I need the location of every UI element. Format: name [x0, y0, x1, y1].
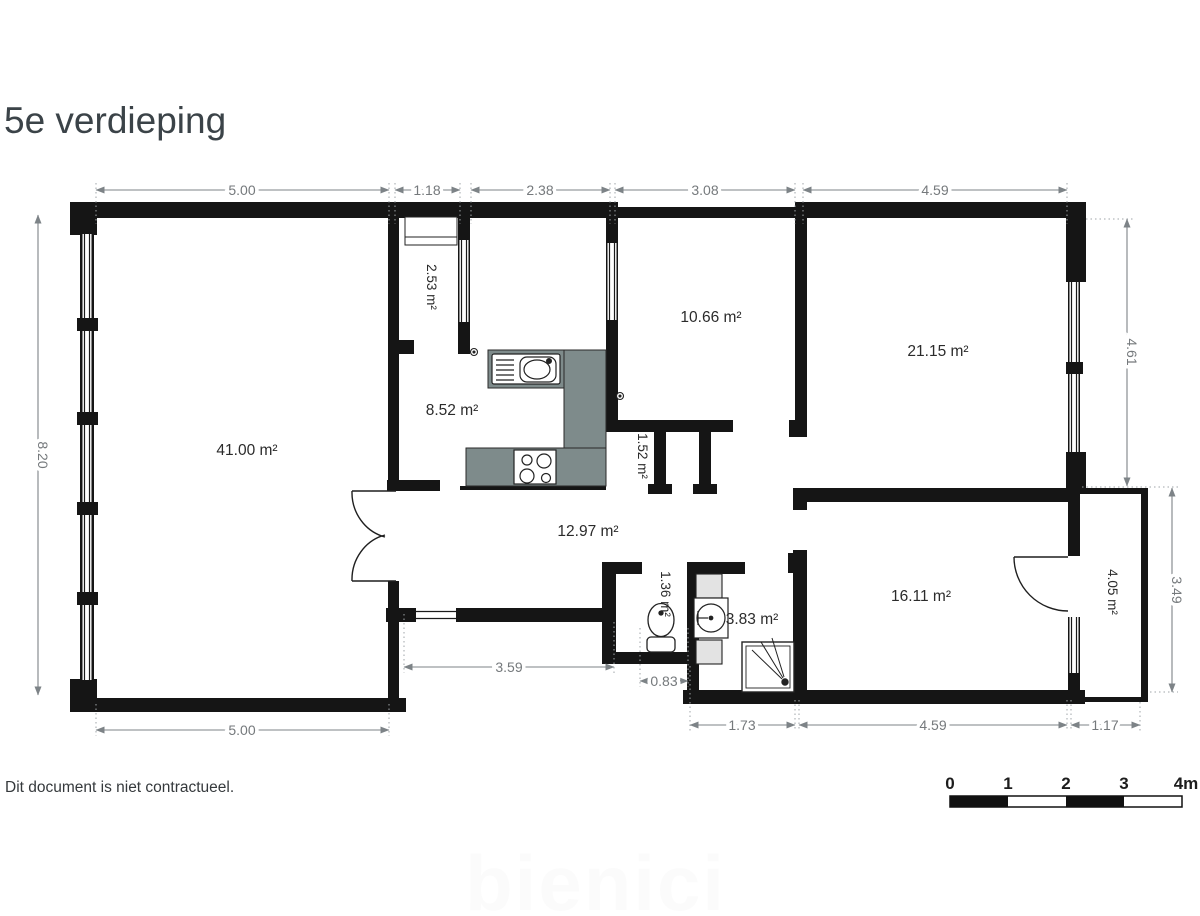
sink-icon: [492, 354, 560, 384]
dim-label: 3.08: [691, 182, 718, 198]
scale-tick: 2: [1061, 774, 1070, 793]
scale-tick: 1: [1003, 774, 1012, 793]
room-label-entry: 2.53 m²: [424, 264, 439, 310]
room-label-living: 41.00 m²: [216, 442, 277, 459]
room-label-bedroom: 16.11 m²: [891, 588, 951, 605]
scale-tick: 4m: [1174, 774, 1199, 793]
window-entry-kitchen: [460, 240, 469, 322]
window-kitchen-room: [608, 243, 617, 320]
dim-label: 1.17: [1091, 717, 1118, 733]
dim-label: 8.20: [35, 441, 51, 468]
room-label-room-a: 10.66 m²: [680, 309, 741, 326]
wall-notch: [618, 202, 795, 207]
room-label-closet: 1.52 m²: [635, 433, 650, 479]
scale-bar: 0 1 2 3 4m: [945, 774, 1198, 807]
dim-label: 3.49: [1169, 576, 1185, 603]
room-label-room-b: 21.15 m²: [907, 343, 968, 360]
entry-closet: [405, 217, 457, 245]
room-label-balcony: 4.05 m²: [1105, 569, 1120, 615]
threshold-hall: [416, 612, 456, 619]
shower-icon: [742, 638, 794, 692]
room-label-wc: 1.36 m²: [658, 571, 673, 617]
scale-tick: 0: [945, 774, 954, 793]
dim-label: 1.18: [413, 182, 440, 198]
living-room-double-door: [352, 491, 396, 581]
washbasin-icon: [694, 598, 728, 638]
scale-tick: 3: [1119, 774, 1128, 793]
dim-label: 2.38: [526, 182, 553, 198]
room-label-kitchen: 8.52 m²: [426, 402, 479, 419]
dim-label: 0.83: [650, 673, 677, 689]
dim-label: 4.61: [1124, 338, 1140, 365]
dim-label: 1.73: [728, 717, 755, 733]
dim-label: 5.00: [228, 722, 255, 738]
window-bedroom-balcony: [1070, 617, 1079, 673]
dim-label: 3.59: [495, 659, 522, 675]
dim-label: 4.59: [921, 182, 948, 198]
dim-label: 4.59: [919, 717, 946, 733]
floorplan-page: 5e verdieping bienici: [0, 0, 1200, 916]
room-label-bathroom: 3.83 m²: [726, 611, 779, 628]
disclaimer-text: Dit document is niet contractueel.: [5, 779, 234, 797]
dim-label: 5.00: [228, 182, 255, 198]
room-label-hall: 12.97 m²: [557, 523, 618, 540]
stove-icon: [514, 450, 556, 484]
bedroom-balcony-door: [1014, 557, 1068, 611]
